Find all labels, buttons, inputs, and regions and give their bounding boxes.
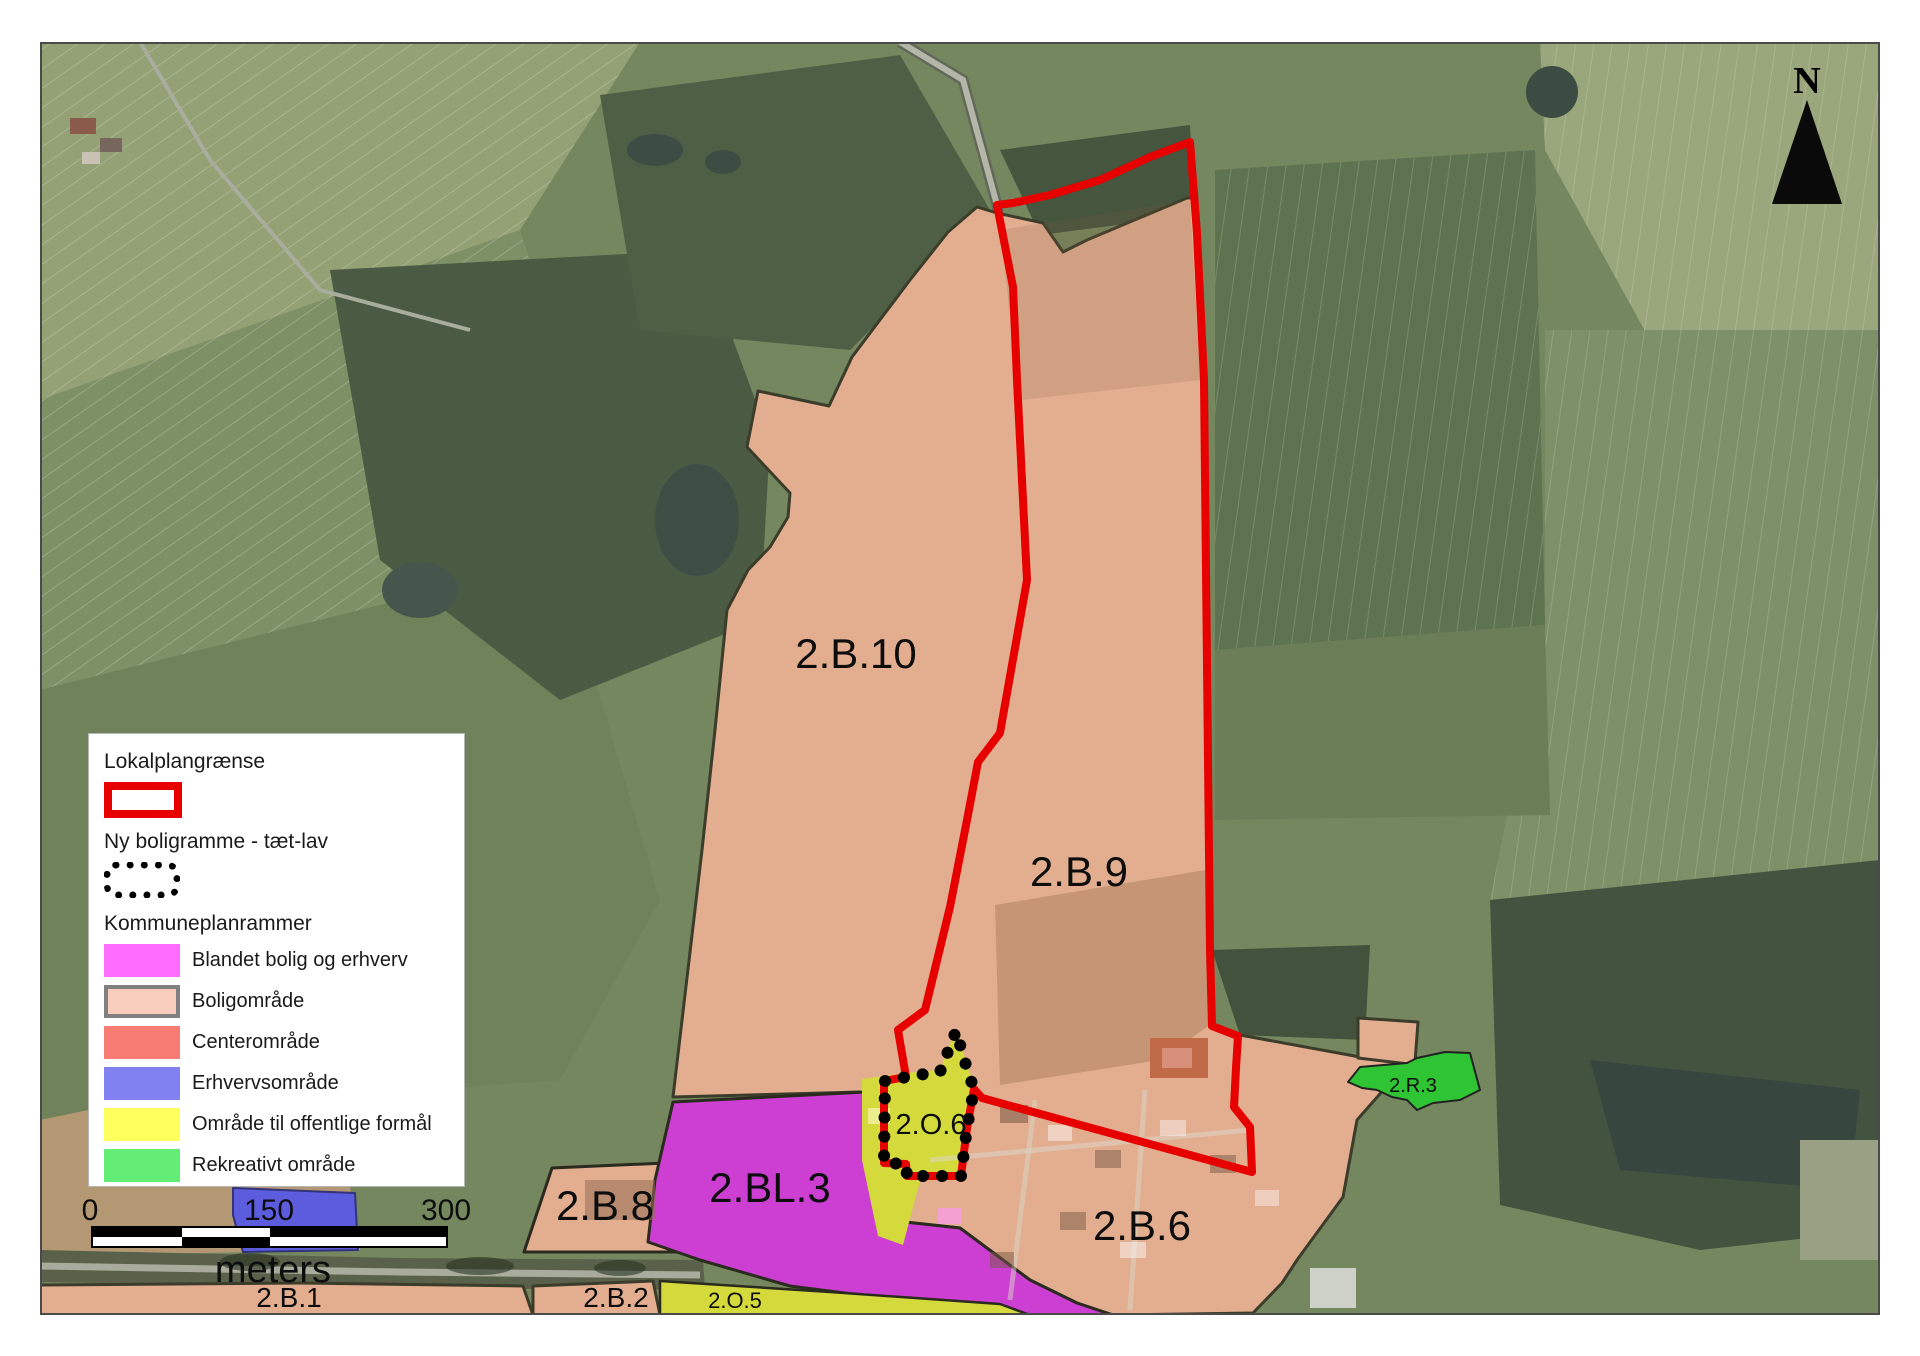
scale-segment: [92, 1237, 182, 1247]
bolig-swatch: [104, 985, 180, 1018]
building: [1095, 1150, 1121, 1168]
label-2R3: 2.R.3: [1389, 1075, 1437, 1097]
roadside-trees: [594, 1260, 646, 1276]
label-2B10: 2.B.10: [795, 630, 916, 677]
label-2B2: 2.B.2: [583, 1282, 648, 1313]
pond: [1526, 66, 1578, 118]
roadside-trees: [446, 1257, 514, 1275]
north-arrow: N: [1762, 62, 1852, 204]
offentlig-swatch: [104, 1108, 180, 1141]
scale-start: 0: [82, 1194, 99, 1227]
lake: [655, 464, 739, 576]
label-2B9: 2.B.9: [1030, 848, 1128, 895]
legend-item-offentlig: Område til offentlige formål: [104, 1108, 464, 1141]
legend-item-blandet: Blandet bolig og erhverv: [104, 944, 464, 977]
building: [1160, 1120, 1186, 1136]
building: [938, 1208, 962, 1224]
building: [990, 1252, 1014, 1268]
scale-segment: [270, 1237, 447, 1247]
scale-segment: [182, 1227, 270, 1237]
building: [1310, 1268, 1356, 1308]
lokalplan-boundary-swatch: [104, 782, 182, 818]
pond: [627, 134, 683, 166]
scale-mid: 150: [244, 1194, 294, 1227]
blandet-swatch: [104, 944, 180, 977]
boligramme-swatch: [104, 862, 180, 898]
blandet-label: Blandet bolig og erhverv: [192, 949, 408, 972]
north-arrow-icon: [1772, 100, 1842, 204]
farm-building-roof: [1162, 1048, 1192, 1068]
label-2O6: 2.O.6: [896, 1109, 967, 1141]
pond: [382, 562, 458, 618]
scale-segment: [270, 1227, 447, 1237]
scale-segment: [182, 1237, 270, 1247]
building: [100, 138, 122, 152]
legend-lokalplan-title: Lokalplangrænse: [104, 750, 464, 774]
pond: [705, 150, 741, 174]
offentlig-label: Område til offentlige formål: [192, 1113, 432, 1136]
label-2O5: 2.O.5: [708, 1288, 762, 1313]
legend-panel: Lokalplangrænse Ny boligramme - tæt-lav …: [88, 733, 465, 1187]
legend-kommuneplan-title: Kommuneplanrammer: [104, 912, 464, 936]
erhverv-label: Erhvervsområde: [192, 1072, 339, 1095]
bare-soil-tint: [1000, 200, 1200, 400]
scale-end: 300: [421, 1194, 471, 1227]
legend-item-center: Centerområde: [104, 1026, 464, 1059]
building: [1060, 1212, 1086, 1230]
lokalplan-map-page: 2.B.10 2.B.9 2.B.6 2.BL.3 2.B.8 2.B.1 2.…: [0, 0, 1920, 1356]
legend-item-rekreativ: Rekreativt område: [104, 1149, 464, 1182]
farm-yard: [1800, 1140, 1880, 1260]
erhverv-swatch: [104, 1067, 180, 1100]
bolig-label: Boligområde: [192, 990, 304, 1013]
field: [1215, 625, 1550, 820]
legend-item-bolig: Boligområde: [104, 985, 464, 1018]
zone-boligomraade-farm: [1358, 1018, 1418, 1064]
scale-unit: meters: [215, 1249, 331, 1291]
building: [1048, 1125, 1072, 1141]
center-label: Centerområde: [192, 1031, 320, 1054]
building: [82, 152, 100, 164]
label-2B8: 2.B.8: [556, 1182, 654, 1229]
center-swatch: [104, 1026, 180, 1059]
legend-boligramme-title: Ny boligramme - tæt-lav: [104, 830, 464, 854]
scale-segment: [92, 1227, 182, 1237]
legend-item-erhverv: Erhvervsområde: [104, 1067, 464, 1100]
label-2B6: 2.B.6: [1093, 1202, 1191, 1249]
north-label: N: [1762, 62, 1852, 100]
rekreativ-swatch: [104, 1149, 180, 1182]
building: [70, 118, 96, 134]
rekreativ-label: Rekreativt område: [192, 1154, 355, 1177]
building: [1255, 1190, 1279, 1206]
label-2BL3: 2.BL.3: [709, 1164, 830, 1211]
field-stripes: [1215, 150, 1545, 650]
